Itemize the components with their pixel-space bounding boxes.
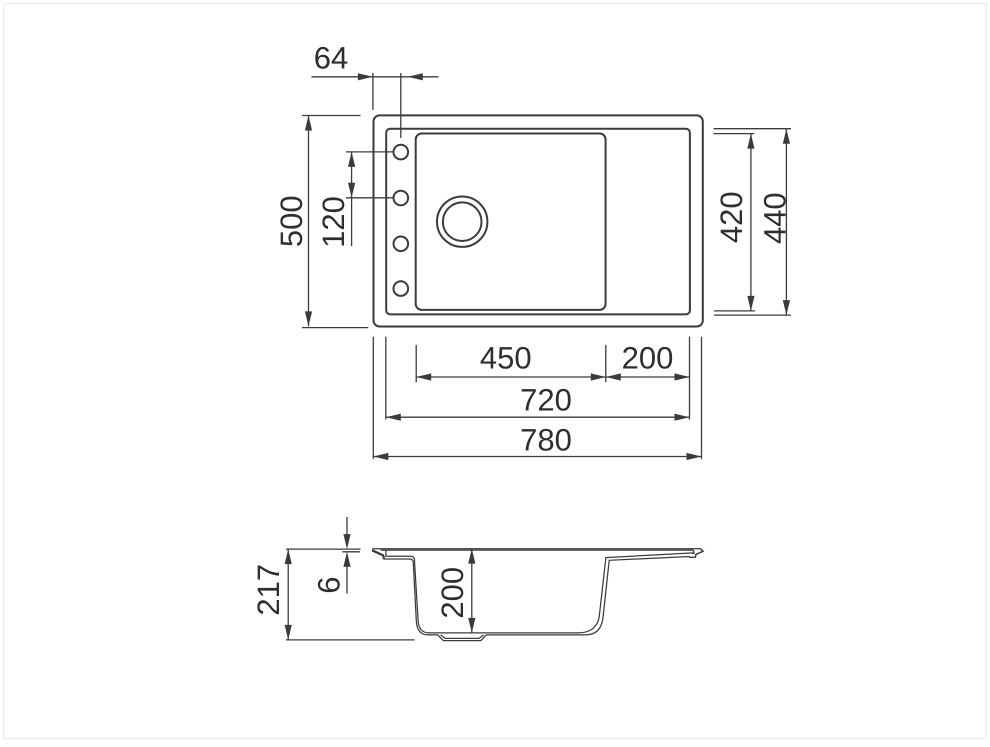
svg-text:440: 440: [757, 192, 792, 244]
svg-text:500: 500: [274, 195, 309, 247]
svg-text:200: 200: [622, 341, 674, 376]
svg-text:200: 200: [435, 567, 470, 619]
svg-text:420: 420: [714, 191, 749, 243]
svg-text:780: 780: [520, 423, 572, 458]
svg-text:64: 64: [314, 40, 348, 75]
svg-text:450: 450: [480, 341, 532, 376]
svg-text:6: 6: [311, 576, 346, 593]
svg-text:120: 120: [316, 196, 351, 248]
svg-text:217: 217: [251, 564, 286, 616]
svg-text:720: 720: [520, 382, 572, 417]
